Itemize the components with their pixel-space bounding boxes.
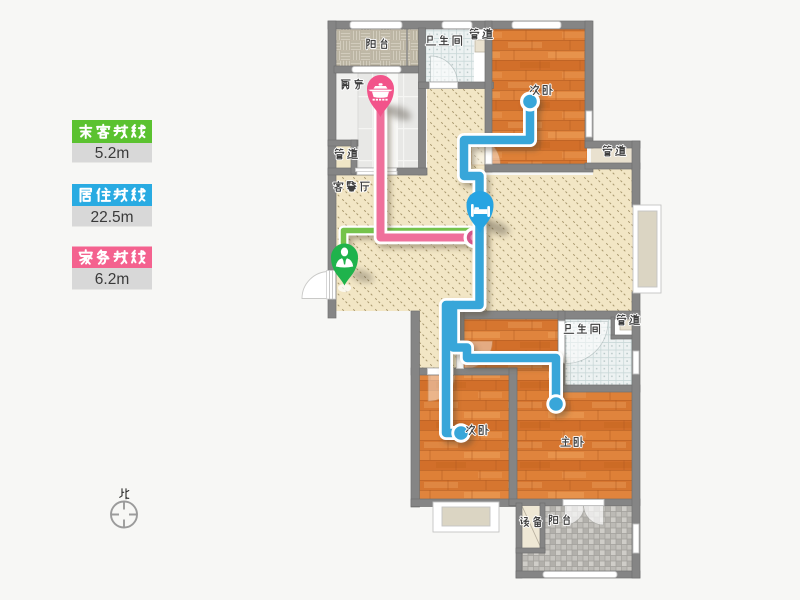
svg-text:5.2m: 5.2m bbox=[95, 145, 129, 162]
svg-text:6.2m: 6.2m bbox=[95, 271, 129, 288]
svg-text:22.5m: 22.5m bbox=[90, 209, 133, 226]
